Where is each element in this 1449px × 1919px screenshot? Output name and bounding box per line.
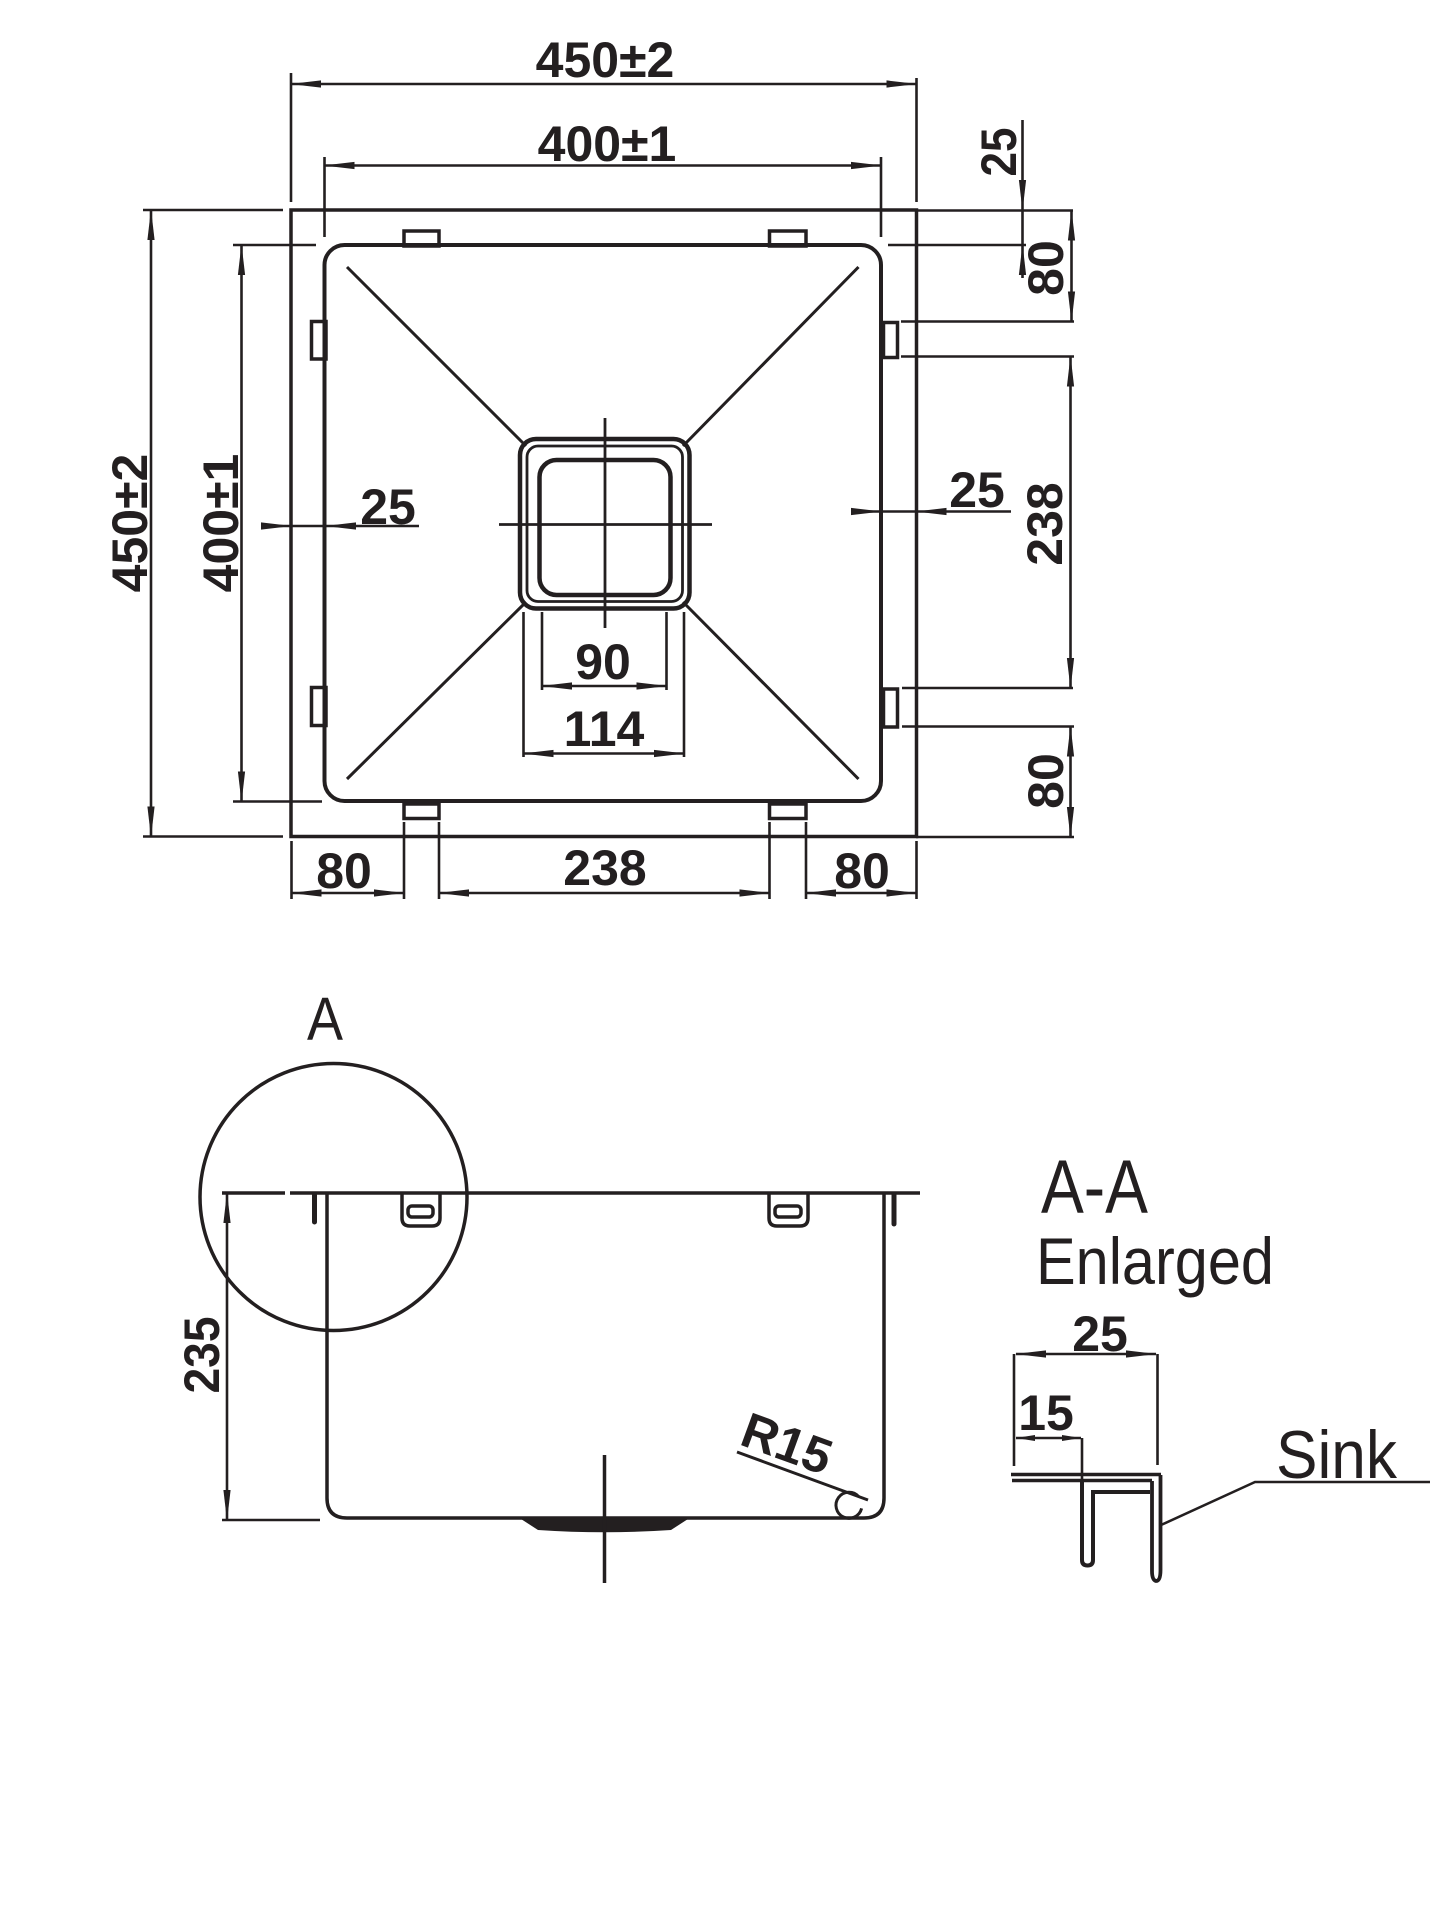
svg-text:A: A	[307, 985, 343, 1053]
svg-text:80: 80	[316, 843, 372, 899]
svg-text:25: 25	[971, 128, 1027, 177]
svg-text:400±1: 400±1	[538, 116, 677, 172]
svg-text:450±2: 450±2	[536, 32, 675, 88]
svg-text:25: 25	[949, 462, 1005, 518]
svg-text:80: 80	[1018, 240, 1074, 296]
svg-text:235: 235	[174, 1317, 230, 1394]
svg-text:400±1: 400±1	[193, 454, 249, 593]
svg-text:114: 114	[564, 701, 645, 757]
svg-text:R15: R15	[734, 1402, 839, 1486]
svg-text:80: 80	[1018, 753, 1074, 809]
svg-text:A-A: A-A	[1041, 1145, 1148, 1230]
svg-text:15: 15	[1018, 1385, 1074, 1441]
svg-text:Enlarged: Enlarged	[1036, 1224, 1274, 1298]
svg-text:450±2: 450±2	[102, 454, 158, 593]
svg-text:90: 90	[575, 634, 631, 690]
svg-text:238: 238	[1017, 482, 1073, 565]
svg-text:80: 80	[834, 843, 890, 899]
svg-text:238: 238	[563, 840, 646, 896]
svg-text:25: 25	[360, 479, 416, 535]
